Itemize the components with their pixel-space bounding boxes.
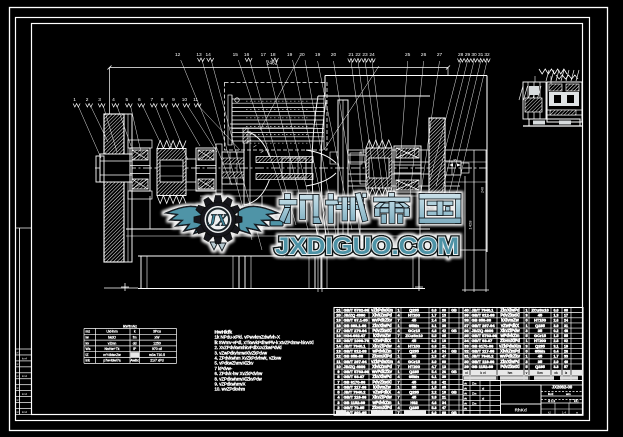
svg-text:20: 20 — [299, 52, 305, 58]
svg-text:k vl: k vl — [480, 371, 485, 375]
svg-text:1: 1 — [397, 339, 399, 343]
svg-text:1.7: 1.7 — [432, 314, 437, 318]
svg-text:7: 7 — [397, 334, 399, 338]
svg-text:0.9: 0.9 — [432, 344, 437, 348]
svg-text:19: 19 — [287, 52, 293, 58]
svg-text:2.6: 2.6 — [554, 319, 559, 323]
svg-text:3: 3 — [525, 344, 527, 348]
svg-text:Zm: Zm — [472, 382, 477, 386]
svg-text:11: 11 — [193, 97, 198, 103]
svg-text:5.4: 5.4 — [432, 370, 437, 374]
svg-text:10. wvZPdkvhm: 10. wvZPdkvhm — [215, 387, 246, 392]
svg-text:GB: GB — [451, 391, 457, 395]
svg-text:lz: lz — [565, 371, 568, 375]
svg-text:k2: k2 — [548, 411, 551, 415]
svg-text:0.8: 0.8 — [432, 380, 437, 384]
svg-text:3: 3 — [98, 97, 101, 103]
svg-text:21/7 xPd: 21/7 xPd — [150, 359, 163, 363]
svg-text:0.4: 0.4 — [554, 350, 559, 354]
svg-text:7: 7 — [397, 350, 399, 354]
svg-text:PdvZkwXl: PdvZkwXl — [500, 364, 519, 369]
svg-text:14: 14 — [206, 52, 212, 58]
svg-text:0.2: 0.2 — [554, 329, 559, 333]
svg-text:xl: xl — [465, 371, 468, 375]
svg-text:31: 31 — [478, 52, 484, 58]
svg-text:970 c/l: 970 c/l — [152, 347, 162, 351]
svg-text:39: 39 — [442, 375, 446, 379]
svg-text:26: 26 — [564, 350, 568, 354]
svg-text:4.7: 4.7 — [432, 365, 437, 369]
svg-text:05: 05 — [442, 334, 446, 338]
svg-text:33: 33 — [564, 355, 568, 359]
svg-text:lkvZ: lkvZ — [548, 392, 554, 396]
svg-text:1: 1 — [525, 339, 527, 343]
svg-text:vk: vk — [464, 392, 468, 396]
svg-text:00: 00 — [564, 308, 568, 312]
svg-text:47: 47 — [442, 355, 446, 359]
svg-text:0.0: 0.0 — [432, 308, 437, 312]
svg-text:xl 1:2: xl 1:2 — [548, 399, 556, 403]
svg-text:10: 10 — [182, 97, 188, 103]
svg-text:RhKd: RhKd — [515, 408, 527, 413]
svg-text:1: 1 — [397, 308, 399, 312]
svg-text:15: 15 — [233, 52, 239, 58]
svg-text:1: 1 — [397, 355, 399, 359]
svg-text:17: 17 — [564, 314, 568, 318]
svg-text:240: 240 — [481, 187, 485, 193]
svg-text:vk: vk — [464, 382, 468, 386]
svg-text:6.2: 6.2 — [432, 339, 437, 343]
svg-text:7: 7 — [397, 396, 399, 400]
svg-text:Q235: Q235 — [535, 364, 546, 369]
svg-text:k: k — [134, 330, 136, 334]
svg-text:3.0: 3.0 — [432, 360, 437, 364]
svg-text:18: 18 — [442, 391, 446, 395]
svg-text:6.0: 6.0 — [432, 411, 437, 415]
svg-text:29: 29 — [464, 364, 469, 369]
svg-text:24: 24 — [369, 52, 375, 58]
svg-text:13: 13 — [196, 52, 202, 58]
svg-text:32: 32 — [484, 52, 490, 58]
svg-text:3.1: 3.1 — [432, 324, 437, 328]
svg-text:3.3: 3.3 — [554, 365, 559, 369]
svg-text:1250: 1250 — [153, 341, 161, 345]
svg-text:5: 5 — [525, 319, 527, 323]
svg-text:19: 19 — [564, 344, 568, 348]
svg-text:hm: hm — [508, 371, 513, 375]
svg-text:vk: vk — [464, 387, 468, 391]
svg-text:31: 31 — [564, 324, 568, 328]
svg-text:tZ: tZ — [86, 353, 89, 357]
svg-text:1428: 1428 — [468, 220, 473, 230]
svg-text:5: 5 — [525, 350, 527, 354]
svg-text:7: 7 — [397, 411, 399, 415]
svg-text:29: 29 — [465, 52, 471, 58]
svg-text:24: 24 — [564, 319, 568, 323]
svg-text:02: 02 — [564, 339, 568, 343]
svg-text:fm: fm — [133, 336, 137, 340]
svg-text:16: 16 — [244, 52, 250, 58]
svg-text:xl: xl — [482, 397, 485, 401]
svg-text:xl: xl — [482, 387, 485, 391]
svg-text:12: 12 — [175, 52, 181, 58]
svg-text:3Pcu: 3Pcu — [153, 330, 161, 334]
svg-text:1: 1 — [397, 324, 399, 328]
svg-text:3.9: 3.9 — [432, 396, 437, 400]
svg-text:34: 34 — [442, 401, 446, 405]
svg-text:8: 8 — [161, 97, 164, 103]
svg-text:dd: dd — [133, 341, 137, 345]
svg-text:vk: vk — [464, 407, 468, 411]
svg-text:AwBc: AwBc — [130, 359, 139, 363]
svg-text:57: 57 — [564, 365, 568, 369]
svg-text:1: 1 — [525, 355, 527, 359]
svg-text:7: 7 — [397, 380, 399, 384]
svg-text:Zm: Zm — [472, 402, 477, 406]
svg-text:5: 5 — [525, 365, 527, 369]
svg-text:xk: xk — [554, 371, 558, 375]
svg-text:00: 00 — [442, 308, 446, 312]
svg-text:17: 17 — [261, 52, 267, 58]
svg-text:4.8: 4.8 — [432, 329, 437, 333]
svg-text:7: 7 — [397, 319, 399, 323]
svg-text:48: 48 — [564, 329, 568, 333]
svg-text:1.6: 1.6 — [432, 350, 437, 354]
svg-text:m3a 710.5: m3a 710.5 — [149, 353, 165, 357]
svg-text:13: 13 — [442, 314, 446, 318]
svg-text:lkm: lkm — [537, 371, 543, 375]
svg-text:lkWfmNz: lkWfmNz — [123, 325, 137, 329]
svg-text:UxHnm: UxHnm — [106, 330, 117, 334]
svg-text:1:4: 1:4 — [562, 411, 566, 415]
svg-text:26: 26 — [421, 52, 427, 58]
svg-text:22: 22 — [355, 52, 361, 58]
svg-text:2.2: 2.2 — [432, 391, 437, 395]
svg-text:7: 7 — [397, 365, 399, 369]
svg-text:GB 1152-89: GB 1152-89 — [472, 364, 494, 369]
svg-text:mYdklsnZw: mYdklsnZw — [103, 353, 121, 357]
svg-text:7: 7 — [150, 97, 153, 103]
svg-text:00: 00 — [442, 360, 446, 364]
svg-text:JXDIGUO.COM: JXDIGUO.COM — [275, 233, 459, 260]
svg-text:lnk: lnk — [86, 359, 91, 363]
svg-text:v: v — [526, 371, 528, 375]
svg-text:21: 21 — [442, 344, 446, 348]
svg-text:25: 25 — [405, 52, 411, 58]
svg-text:4: 4 — [112, 97, 115, 103]
svg-text:GB: GB — [451, 350, 457, 354]
svg-text:2.0: 2.0 — [554, 360, 559, 364]
svg-text:18: 18 — [270, 52, 276, 58]
svg-text:30: 30 — [471, 52, 477, 58]
svg-text:3: 3 — [525, 360, 527, 364]
svg-text:GB/T 301-95: GB/T 301-95 — [344, 410, 368, 415]
svg-text:1.3: 1.3 — [554, 314, 559, 318]
svg-text:18: 18 — [442, 339, 446, 343]
svg-text:27: 27 — [437, 52, 443, 58]
svg-text:hkdO: hkdO — [108, 336, 116, 340]
svg-text:vk: vk — [464, 397, 468, 401]
svg-text:5.3: 5.3 — [432, 406, 437, 410]
svg-text:6: 6 — [138, 97, 141, 103]
svg-text:1: 1 — [525, 308, 527, 312]
svg-text:47: 47 — [442, 406, 446, 410]
svg-text:42: 42 — [442, 329, 446, 333]
svg-text:km4: km4 — [22, 392, 27, 396]
svg-text:1: 1 — [73, 97, 76, 103]
svg-text:23: 23 — [362, 52, 368, 58]
svg-text:2.4: 2.4 — [432, 319, 437, 323]
svg-text:2.3: 2.3 — [432, 355, 437, 359]
svg-text:vk: vk — [464, 402, 468, 406]
svg-text:13: 13 — [442, 365, 446, 369]
svg-text:00: 00 — [442, 411, 446, 415]
svg-text:26: 26 — [442, 319, 446, 323]
svg-text:vZmn: vZmn — [108, 341, 117, 345]
svg-text:26: 26 — [442, 370, 446, 374]
svg-text:GB: GB — [451, 329, 457, 333]
svg-text:1.5: 1.5 — [554, 334, 559, 338]
svg-text:28: 28 — [458, 52, 464, 58]
svg-text:GB: GB — [451, 308, 457, 312]
svg-text:3.1: 3.1 — [554, 344, 559, 348]
svg-text:4.6: 4.6 — [432, 401, 437, 405]
svg-text:1.5: 1.5 — [432, 385, 437, 389]
svg-text:05: 05 — [442, 385, 446, 389]
svg-text:xW: xW — [155, 336, 161, 340]
svg-text:0.0: 0.0 — [554, 308, 559, 312]
svg-text:mz: mz — [86, 330, 91, 334]
svg-text:GB: GB — [451, 411, 457, 415]
svg-text:40: 40 — [564, 360, 568, 364]
svg-text:1: 1 — [397, 401, 399, 405]
svg-text:km4: km4 — [22, 374, 27, 378]
svg-text:5.5: 5.5 — [432, 334, 437, 338]
svg-text:20: 20 — [331, 52, 337, 58]
svg-text:3: 3 — [525, 329, 527, 333]
svg-text:1: 1 — [397, 370, 399, 374]
svg-text:9: 9 — [172, 97, 175, 103]
svg-text:3.9: 3.9 — [554, 324, 559, 328]
svg-text:2.8: 2.8 — [554, 339, 559, 343]
svg-text:Ws: Ws — [86, 347, 91, 351]
svg-text:39: 39 — [442, 324, 446, 328]
svg-text:NnHw+Tk: NnHw+Tk — [105, 347, 120, 351]
svg-text:34: 34 — [442, 350, 446, 354]
svg-text:km4: km4 — [22, 410, 27, 414]
svg-text:kv: kv — [86, 341, 90, 345]
svg-text:55: 55 — [564, 334, 568, 338]
svg-text:5: 5 — [125, 97, 128, 103]
svg-text:21: 21 — [348, 52, 354, 58]
svg-text:21: 21 — [442, 396, 446, 400]
svg-text:19: 19 — [315, 52, 321, 58]
svg-text:lw: lw — [86, 336, 90, 340]
svg-text:6.1: 6.1 — [432, 375, 437, 379]
svg-text:95: 95 — [453, 158, 457, 162]
svg-text:JX: JX — [207, 211, 229, 230]
svg-text:1.7: 1.7 — [554, 355, 559, 359]
svg-text:5: 5 — [525, 334, 527, 338]
svg-text:p7w-fdw/7a: p7w-fdw/7a — [103, 359, 120, 363]
svg-text:km4: km4 — [22, 356, 27, 360]
svg-text:3: 3 — [525, 314, 527, 318]
svg-text:wm: wm — [566, 392, 571, 396]
svg-text:JX2062-00: JX2062-00 — [552, 385, 573, 390]
svg-text:1: 1 — [525, 324, 527, 328]
svg-text:1: 1 — [397, 385, 399, 389]
svg-text:GB: GB — [451, 370, 457, 374]
svg-text:42: 42 — [442, 380, 446, 384]
svg-text:2: 2 — [86, 97, 89, 103]
svg-text:Zm: Zm — [472, 392, 477, 396]
